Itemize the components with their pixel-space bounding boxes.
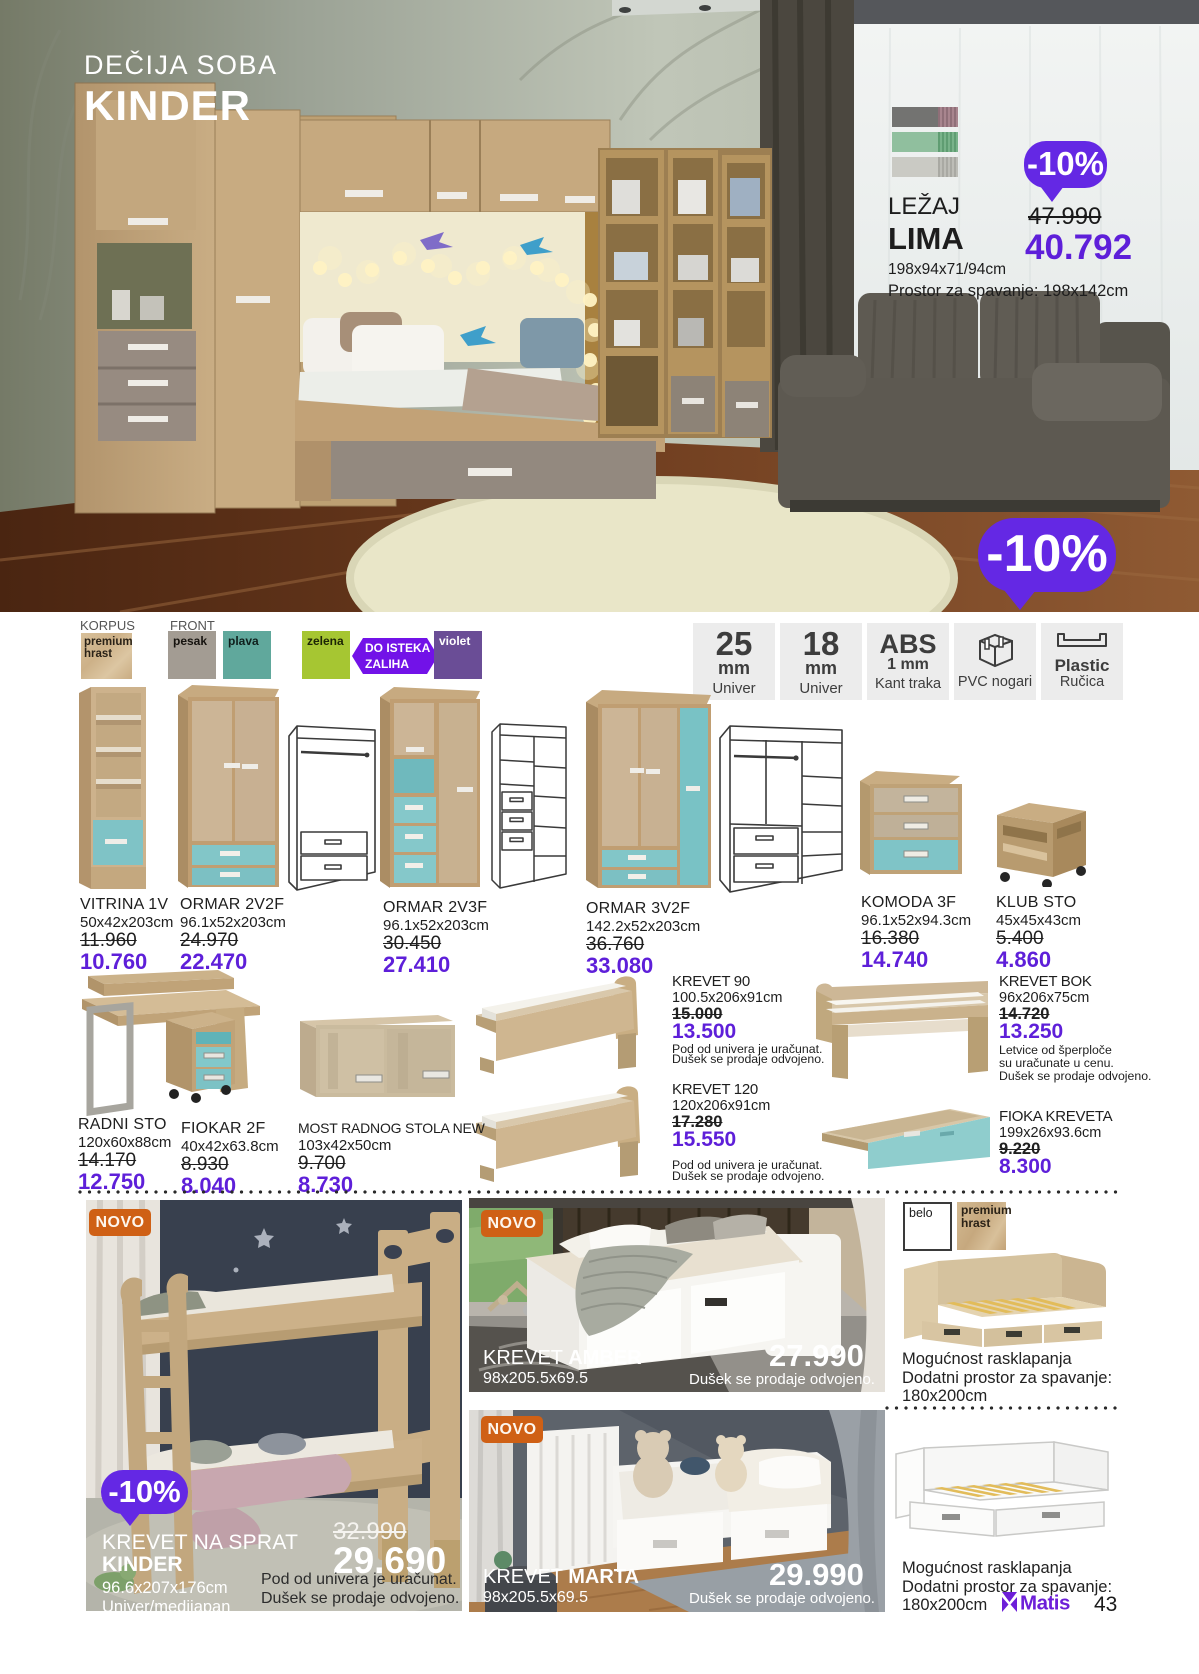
svg-text:Matis: Matis (1020, 1592, 1070, 1613)
